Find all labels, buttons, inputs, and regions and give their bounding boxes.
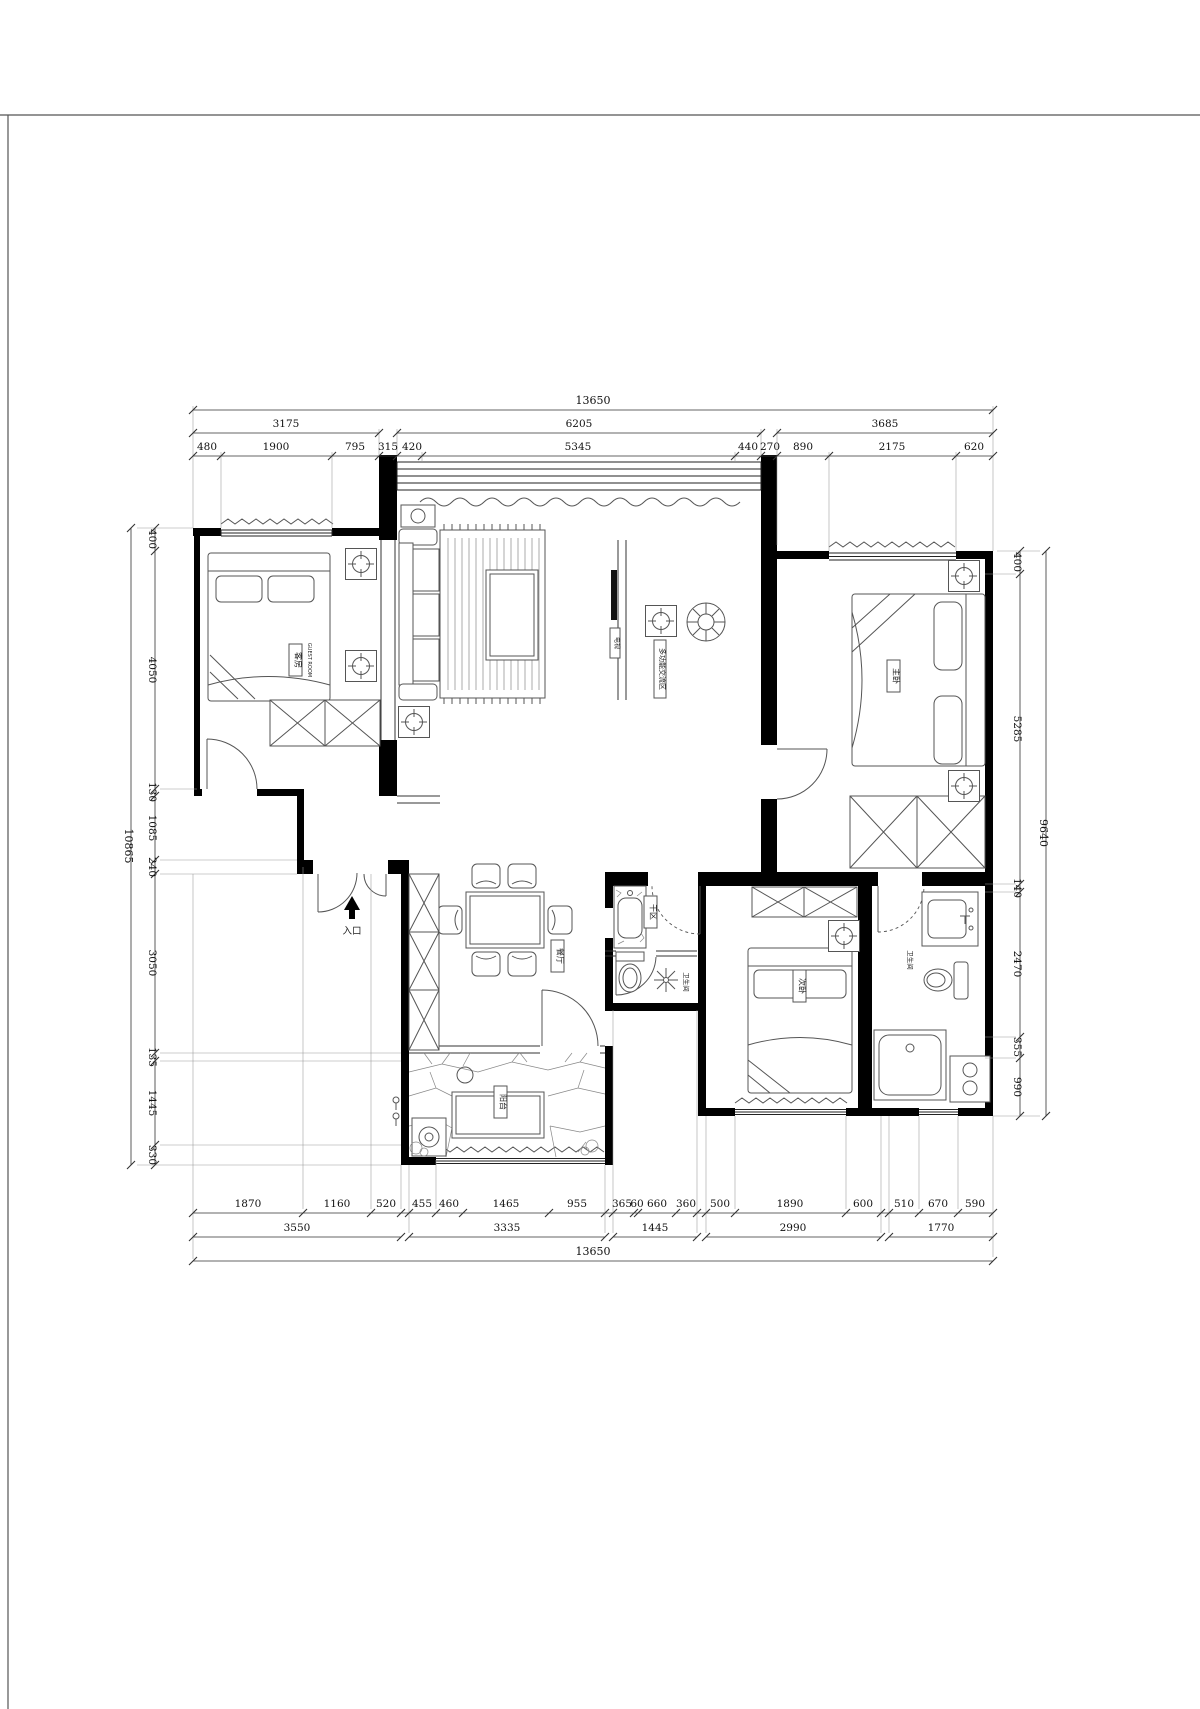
- lamp-icon: [949, 771, 980, 802]
- dim-label: 600: [853, 1198, 873, 1210]
- room-label-balcony: 阳台: [499, 1094, 509, 1110]
- dim-label: 3335: [494, 1222, 521, 1234]
- living-area: [399, 505, 725, 704]
- master-bathroom: [874, 892, 990, 1102]
- dim-label: 455: [412, 1198, 432, 1210]
- dining-table: [466, 892, 544, 948]
- dim-label: 440: [738, 441, 758, 453]
- guest-room-door: [207, 739, 257, 789]
- room-label-master-bathroom: 卫生间: [906, 950, 915, 970]
- room-label-bathroom: 卫生间: [682, 972, 691, 992]
- dim-label: 670: [928, 1198, 948, 1210]
- dim-label: 460: [439, 1198, 459, 1210]
- dim-label: 590: [965, 1198, 985, 1210]
- master-toilet: [924, 969, 952, 991]
- dim-label: 420: [402, 441, 422, 453]
- dim-label: 400: [146, 529, 158, 549]
- room-label-dry-area: 干区: [649, 904, 658, 920]
- dim-label: 2470: [1011, 951, 1023, 978]
- dim-label: 1465: [493, 1198, 520, 1210]
- floor-plan-svg: 入口 客房 GUEST ROOM 多功能交流区 电视 主卧 次卧 餐厅 干区 卫…: [0, 0, 1200, 1709]
- coffee-table: [486, 570, 538, 660]
- dim-label: 620: [964, 441, 984, 453]
- floor-plan-sheet: 入口 客房 GUEST ROOM 多功能交流区 电视 主卧 次卧 餐厅 干区 卫…: [0, 0, 1200, 1709]
- dim-label: 5285: [1011, 716, 1023, 743]
- dim-label: 3175: [273, 418, 300, 430]
- tap: [393, 1113, 399, 1119]
- lamp-icon: [346, 651, 377, 682]
- dim-label: 1890: [777, 1198, 804, 1210]
- dim-label: 510: [894, 1198, 914, 1210]
- dim-label: 13650: [576, 394, 611, 407]
- dim-label: 13650: [576, 1245, 611, 1258]
- dim-label: 4050: [146, 657, 158, 684]
- dim-label: 60: [630, 1198, 643, 1210]
- dining-area: [409, 864, 572, 1050]
- dim-label: 520: [376, 1198, 396, 1210]
- dim-label: 2990: [780, 1222, 807, 1234]
- dim-label: 1445: [146, 1090, 158, 1117]
- dim-label: 500: [710, 1198, 730, 1210]
- entry-arrow-icon: [344, 896, 360, 910]
- room-label-entrance: 入口: [342, 926, 361, 937]
- dim-label: 3550: [284, 1222, 311, 1234]
- dim-label: 10865: [122, 829, 135, 864]
- room-label-secondary: 次卧: [798, 978, 808, 994]
- dim-label: 955: [567, 1198, 587, 1210]
- dim-label: 330: [146, 1145, 158, 1165]
- tv: [611, 570, 617, 620]
- dim-label: 360: [676, 1198, 696, 1210]
- balcony-door: [542, 990, 598, 1046]
- dim-label: 240: [146, 857, 158, 877]
- room-label-master: 主卧: [892, 668, 902, 684]
- dim-label: 1770: [928, 1222, 955, 1234]
- room-label-guest: 客房: [294, 652, 304, 668]
- dry-area: [614, 886, 646, 948]
- dim-label: 9640: [1037, 819, 1050, 847]
- dim-label: 6205: [566, 418, 593, 430]
- dim-label: 140: [1011, 878, 1023, 898]
- master-bedroom-door: [777, 749, 827, 799]
- dim-label: 890: [793, 441, 813, 453]
- dim-label: 1085: [146, 815, 158, 842]
- dim-label: 3050: [146, 950, 158, 977]
- entrance: 入口: [342, 896, 361, 937]
- dim-label: 400: [1011, 552, 1023, 572]
- toilet-tank: [616, 952, 644, 961]
- lamp-icon: [346, 549, 377, 580]
- dim-label: 1160: [324, 1198, 351, 1210]
- room-label-guest-en: GUEST ROOM: [306, 643, 312, 677]
- dim-label: 1870: [235, 1198, 262, 1210]
- dim-label: 3685: [872, 418, 899, 430]
- dim-label: 355: [1011, 1037, 1023, 1057]
- dim-label: 795: [345, 441, 365, 453]
- dimensions-bottom: 1870 1160 520 455 460 1465 955 365 60 66…: [235, 1198, 985, 1258]
- tv-wall: [618, 540, 626, 700]
- dim-label: 365: [612, 1198, 632, 1210]
- dimensions-right: 400 5285 140 2470 355 990 9640: [1011, 552, 1050, 1097]
- dim-label: 1445: [642, 1222, 669, 1234]
- lamp-icon: [399, 707, 430, 738]
- dim-label: 135: [146, 1047, 158, 1067]
- bathtub: [874, 1030, 946, 1100]
- dim-label: 130: [146, 782, 158, 802]
- lamp-icon: [646, 606, 677, 637]
- bathroom: [616, 952, 678, 992]
- room-label-living: 多功能交流区: [658, 648, 667, 690]
- dim-label: 480: [197, 441, 217, 453]
- dimensions-left: 400 4050 130 1085 240 3050 135 1445 330 …: [122, 529, 158, 1165]
- lamp-icon: [949, 561, 980, 592]
- dim-label: 5345: [565, 441, 592, 453]
- dimensions-top: 13650 3175 6205 3685 480 1900 795 315 42…: [197, 394, 984, 453]
- tap: [393, 1097, 399, 1103]
- dim-label: 270: [760, 441, 780, 453]
- dim-label: 660: [647, 1198, 667, 1210]
- dim-label: 2175: [879, 441, 906, 453]
- lamp-icon: [829, 921, 860, 952]
- master-bed: [852, 594, 985, 766]
- dim-label: 990: [1011, 1077, 1023, 1097]
- room-label-dining: 餐厅: [556, 948, 565, 964]
- dim-label: 1900: [263, 441, 290, 453]
- dim-label: 315: [378, 441, 398, 453]
- room-label-tv: 电视: [613, 637, 621, 649]
- washing-machine: [412, 1118, 446, 1156]
- master-bedroom: [850, 594, 985, 868]
